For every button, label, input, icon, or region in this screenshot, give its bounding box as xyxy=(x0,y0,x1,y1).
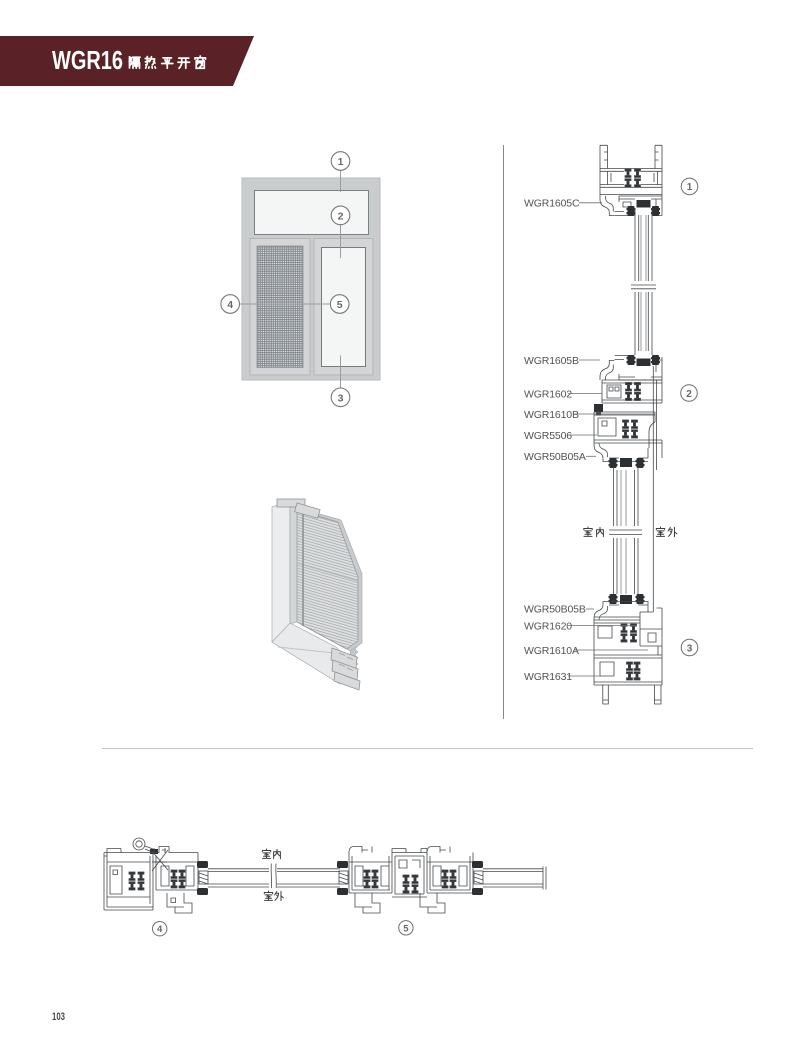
svg-text:5: 5 xyxy=(337,299,343,311)
svg-text:WGR50B05B: WGR50B05B xyxy=(524,604,586,616)
svg-text:WGR1620: WGR1620 xyxy=(524,620,572,632)
svg-text:4: 4 xyxy=(227,299,233,311)
svg-text:2: 2 xyxy=(686,389,692,400)
svg-text:WGR1610A: WGR1610A xyxy=(524,645,579,657)
svg-text:WGR1602: WGR1602 xyxy=(524,388,572,400)
svg-text:1: 1 xyxy=(687,182,693,193)
svg-text:1: 1 xyxy=(338,156,344,168)
svg-text:WGR1605B: WGR1605B xyxy=(524,355,579,367)
svg-text:3: 3 xyxy=(338,392,344,404)
svg-text:5: 5 xyxy=(403,923,409,934)
svg-text:WGR5506: WGR5506 xyxy=(524,430,572,442)
svg-text:WGR1605C: WGR1605C xyxy=(524,198,580,210)
svg-text:103: 103 xyxy=(52,1011,65,1023)
svg-text:WGR16: WGR16 xyxy=(52,45,123,75)
svg-text:WGR1631: WGR1631 xyxy=(524,671,572,683)
svg-text:2: 2 xyxy=(338,210,344,222)
svg-text:WGR50B05A: WGR50B05A xyxy=(524,451,586,463)
svg-text:3: 3 xyxy=(687,643,693,654)
svg-text:4: 4 xyxy=(157,924,163,935)
svg-text:WGR1610B: WGR1610B xyxy=(524,409,579,421)
